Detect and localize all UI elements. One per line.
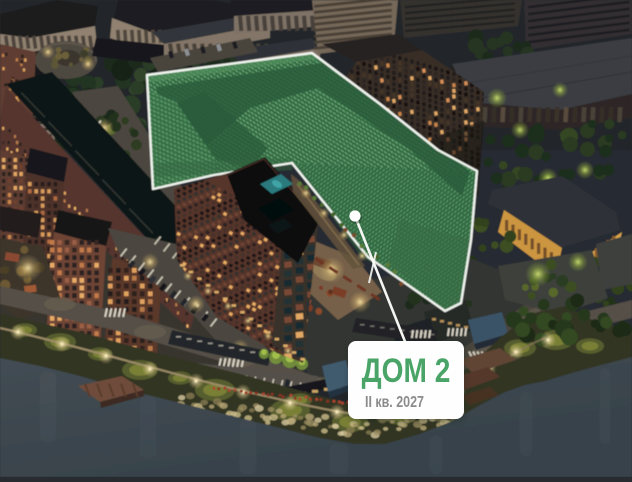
- svg-text:II кв. 2027: II кв. 2027: [365, 394, 424, 412]
- svg-text:ДОМ 2: ДОМ 2: [362, 351, 451, 389]
